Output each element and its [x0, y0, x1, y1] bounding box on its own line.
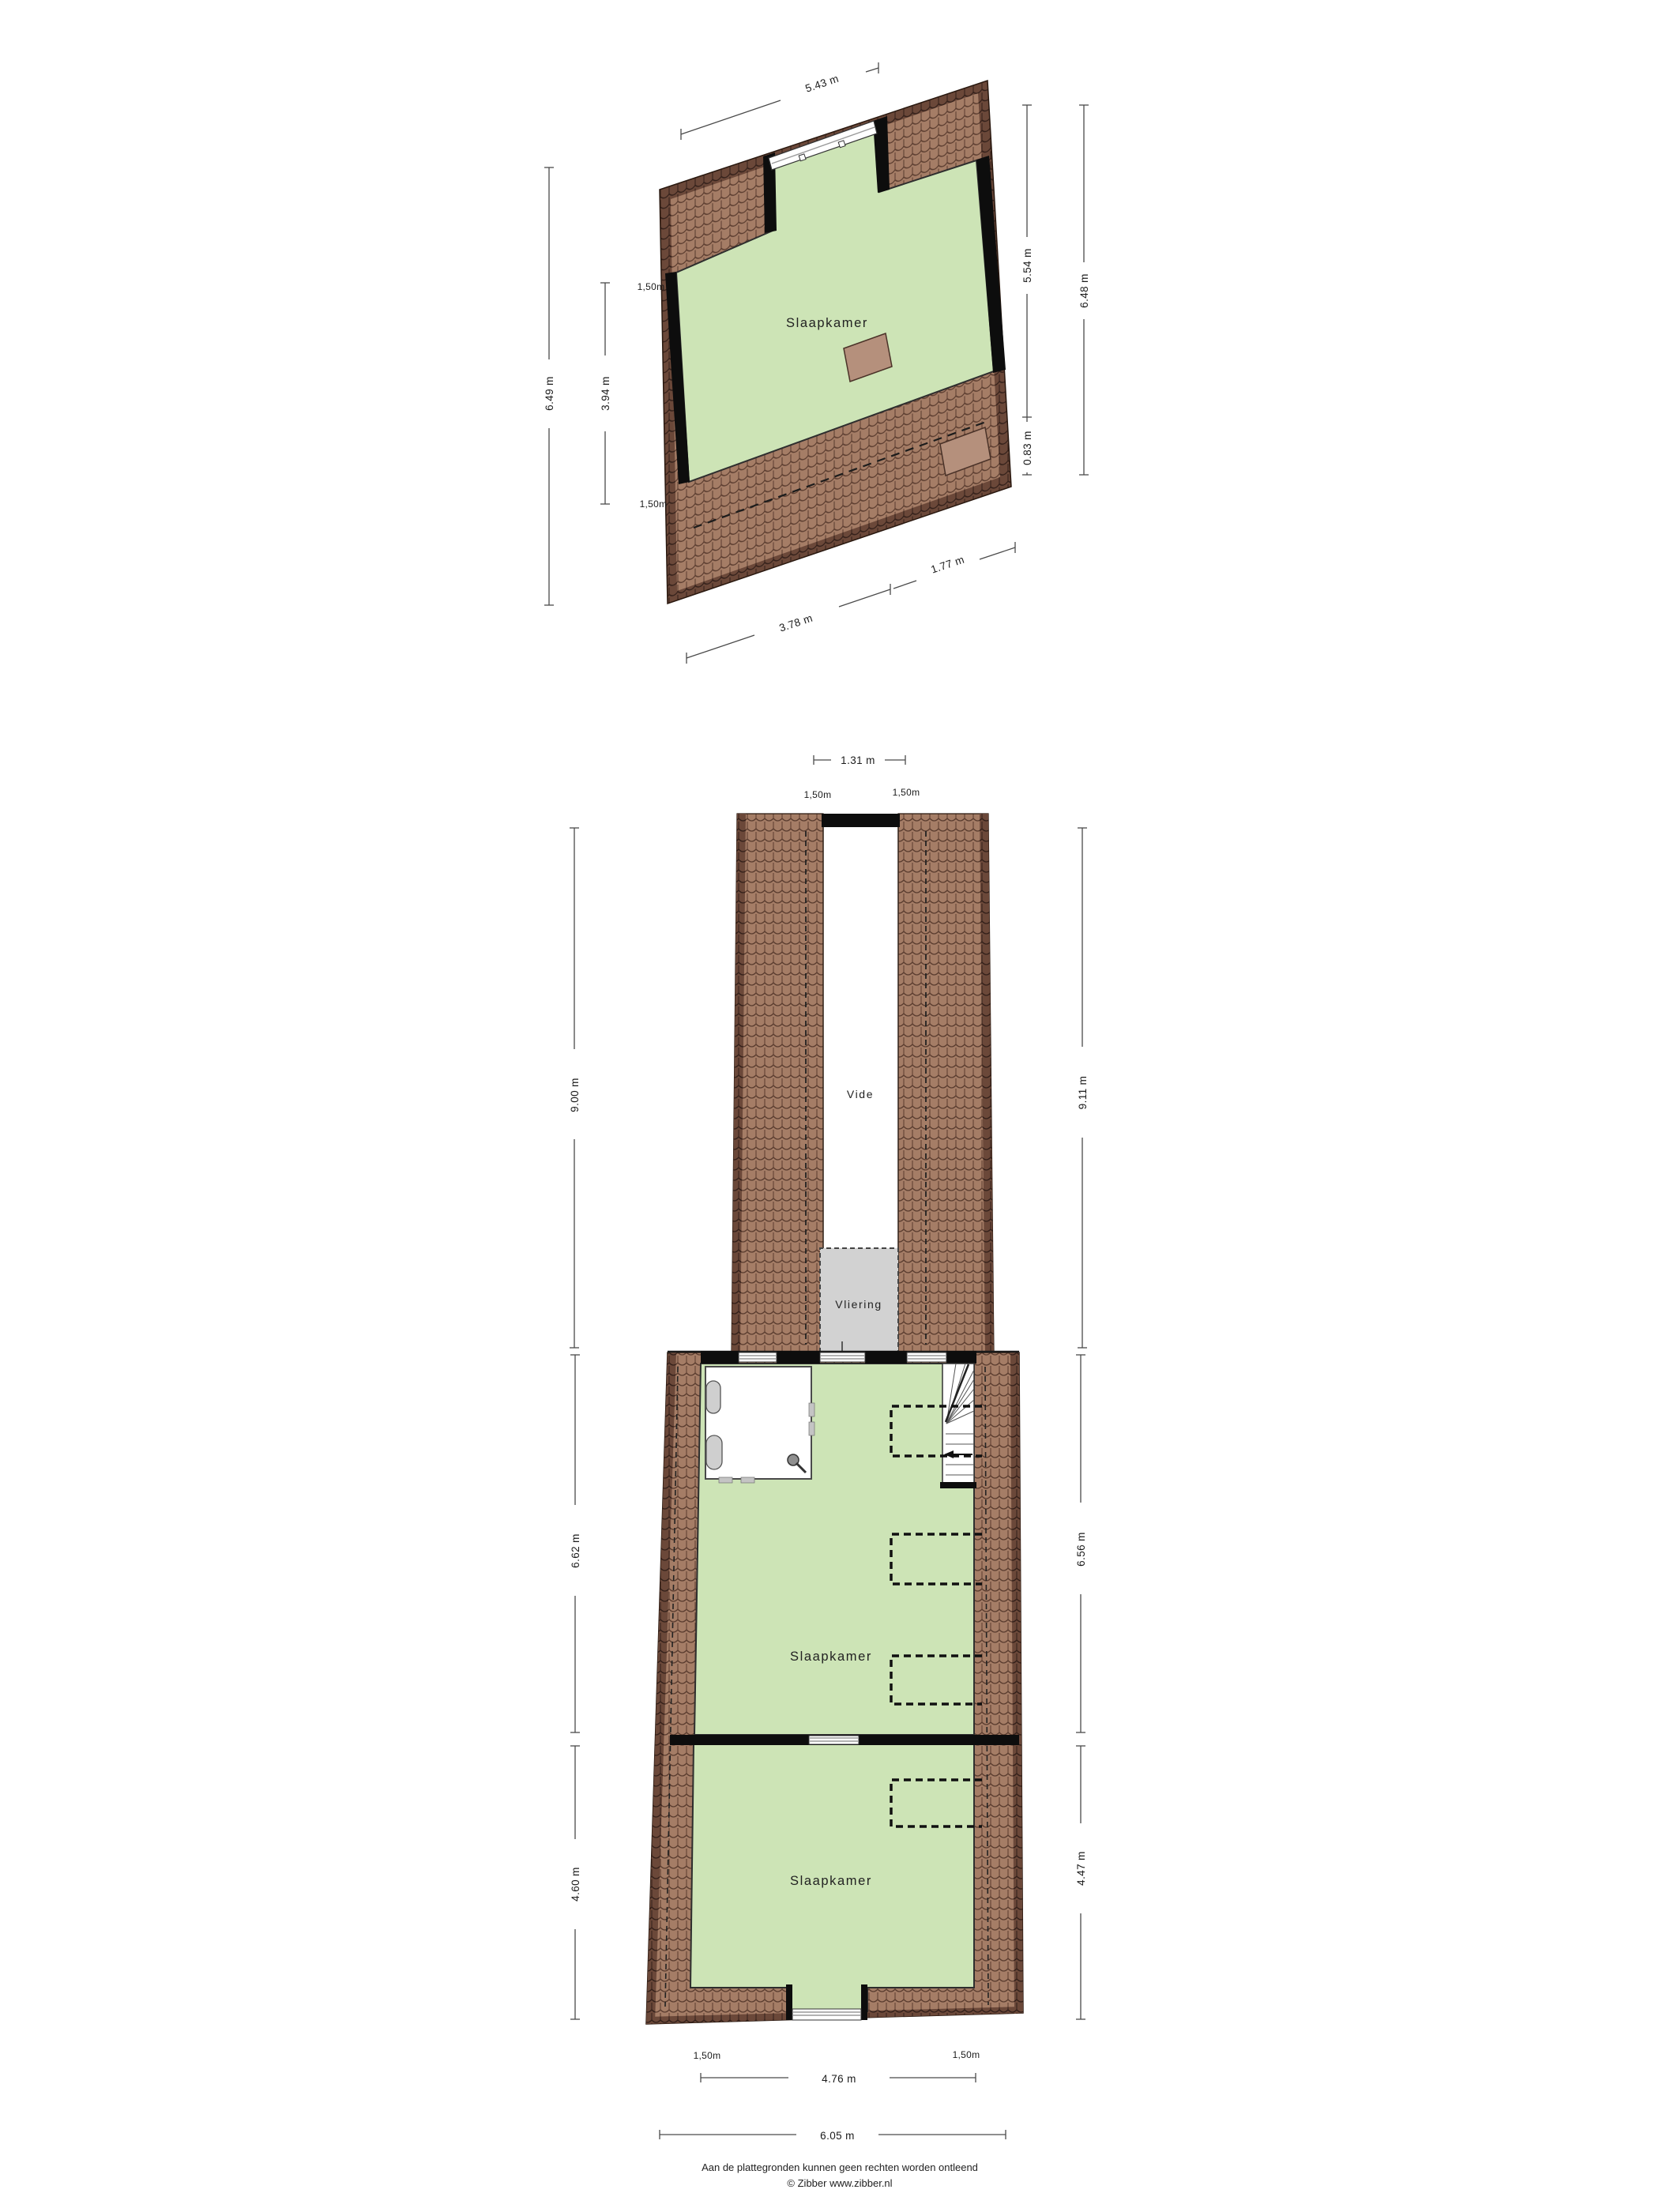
footer: Aan de plattegronden kunnen geen rechten… [702, 2161, 978, 2189]
floorplan-page: Slaapkamer 5.43 m 6.49 m 3.94 m 1,50m 1,… [0, 0, 1659, 2212]
door-mark [719, 1477, 732, 1483]
door-mark [809, 1403, 814, 1416]
svg-text:9.11 m: 9.11 m [1077, 1076, 1089, 1110]
room-label: Slaapkamer [790, 1874, 872, 1888]
headroom-label: 1,50m [640, 498, 668, 510]
dimension-upper-right: 9.11 m [1077, 828, 1089, 1348]
dimension-bottom-left: 3.78 m [687, 584, 890, 664]
headroom-label: 1,50m [804, 789, 832, 800]
window [820, 1352, 865, 1362]
dimension-right-roof: 0.83 m [1021, 417, 1033, 475]
vide-label: Vide [847, 1088, 874, 1100]
disclaimer-text: Aan de plattegronden kunnen geen rechten… [702, 2161, 978, 2173]
headroom-label: 1,50m [953, 2049, 980, 2060]
vide-top-wall [822, 814, 900, 827]
room-label: Slaapkamer [786, 316, 868, 330]
svg-text:0.83 m: 0.83 m [1021, 431, 1033, 465]
door-mark [809, 1422, 814, 1435]
svg-text:9.00 m: 9.00 m [569, 1078, 581, 1112]
dimension-bottom-inner: 4.76 m [701, 2073, 976, 2085]
svg-text:5.43 m: 5.43 m [803, 73, 840, 95]
headroom-label: 1,50m [638, 281, 665, 292]
door-mark [741, 1477, 754, 1483]
bathroom [705, 1367, 814, 1483]
sink [706, 1381, 720, 1413]
svg-text:1.31 m: 1.31 m [841, 754, 875, 766]
svg-text:4.76 m: 4.76 m [822, 2073, 856, 2085]
svg-text:1.77 m: 1.77 m [929, 554, 965, 576]
svg-text:4.47 m: 4.47 m [1075, 1851, 1087, 1886]
room-label: Slaapkamer [790, 1650, 872, 1664]
svg-text:6.49 m: 6.49 m [544, 376, 555, 411]
dimension-bottom-right: 1.77 m [893, 542, 1015, 589]
dimension-left-room: 3.94 m [600, 283, 611, 504]
dimension-mid-left: 6.62 m [570, 1355, 581, 1732]
dimension-vide-width: 1.31 m [814, 754, 905, 766]
vide-right-roof [898, 814, 994, 1352]
headroom-label: 1,50m [893, 787, 920, 798]
svg-text:6.56 m: 6.56 m [1075, 1532, 1087, 1567]
floorplan-canvas: Slaapkamer 5.43 m 6.49 m 3.94 m 1,50m 1,… [0, 0, 1659, 2212]
headroom-label: 1,50m [694, 2050, 721, 2061]
mid-section-top-wall [668, 1351, 1019, 1364]
svg-text:4.60 m: 4.60 m [570, 1867, 581, 1902]
bottom-floor-plan: Vide Vliering [569, 754, 1089, 2142]
dimension-right-total: 6.48 m [1078, 105, 1090, 475]
dimension-left-total: 6.49 m [544, 167, 555, 605]
credit-text: © Zibber www.zibber.nl [787, 2177, 892, 2189]
window [739, 1352, 777, 1362]
window [792, 2009, 861, 2020]
svg-text:6.48 m: 6.48 m [1078, 273, 1090, 308]
dimension-upper-left: 9.00 m [569, 828, 581, 1348]
dimension-mid-right: 6.56 m [1075, 1355, 1087, 1732]
svg-text:Vliering: Vliering [835, 1298, 882, 1311]
svg-text:5.54 m: 5.54 m [1021, 248, 1033, 283]
divider-wall [670, 1735, 1019, 1745]
vliering: Vliering [820, 1248, 898, 1352]
vide-left-roof [732, 814, 823, 1352]
dimension-right-room: 5.54 m [1021, 105, 1033, 417]
toilet [706, 1435, 722, 1469]
svg-text:6.05 m: 6.05 m [820, 2130, 855, 2142]
stair-sill [940, 1482, 976, 1488]
svg-text:3.94 m: 3.94 m [600, 376, 611, 411]
top-floor-plan: Slaapkamer 5.43 m 6.49 m 3.94 m 1,50m 1,… [544, 62, 1090, 664]
staircase [940, 1364, 976, 1488]
window [809, 1736, 859, 1744]
dimension-bottom-outer: 6.05 m [660, 2130, 1006, 2142]
dimension-lower-left: 4.60 m [570, 1746, 581, 2019]
svg-text:6.62 m: 6.62 m [570, 1533, 581, 1568]
svg-text:3.78 m: 3.78 m [777, 612, 814, 634]
window [907, 1352, 946, 1362]
dimension-lower-right: 4.47 m [1075, 1746, 1087, 2019]
